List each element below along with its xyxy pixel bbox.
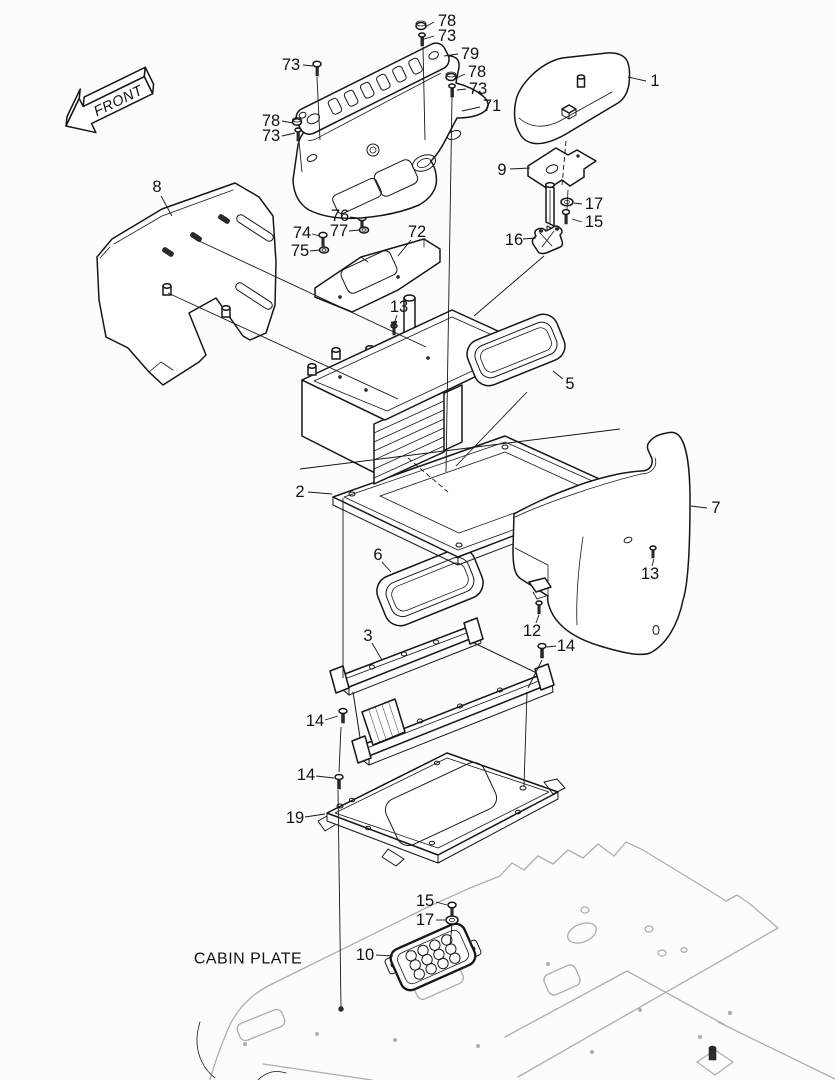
bolt-15-bottom [448,902,456,916]
part-label: 8 [152,178,161,196]
part-label: 74 [293,224,311,242]
part-6-pad-ring [372,543,488,630]
part-label: 15 [585,213,603,231]
label-leader-line [316,776,334,778]
part-label: 78 [468,63,486,81]
part-8-side-cover [97,183,276,385]
label-leader-line [628,77,646,81]
part-label: 12 [523,622,541,640]
part-label: 17 [416,911,434,929]
part-label: 13 [390,298,408,316]
part-label: 71 [483,97,501,115]
part-label: 1 [650,72,659,90]
bolt-14-bottom [335,775,343,790]
part-label: 16 [505,231,523,249]
cap-78-a [416,21,426,30]
label-leader-line [547,646,556,647]
part-label: 79 [461,45,479,63]
part-1-armrest [515,53,630,144]
label-leader-line [691,506,707,508]
nut-75 [320,247,329,253]
label-leader-line [308,492,332,494]
screw-73-a [419,33,425,46]
part-label: 5 [565,375,574,393]
part-label: 73 [262,127,280,145]
exploded-diagram: FRONT CABIN PLATE 7873797378737178731917… [0,0,835,1080]
label-leader-line [303,65,313,66]
part-label: 7 [711,499,720,517]
screw-74 [319,232,327,246]
label-leader-line [282,133,295,136]
bolt-15-top [563,210,570,224]
part-label: 73 [438,27,456,45]
part-label: 15 [416,892,434,910]
part-label: 19 [286,809,304,827]
part-19-base-plate [318,753,565,866]
label-leader-line [310,250,320,251]
bolt-14-left [339,709,347,724]
part-label: 73 [469,80,487,98]
part-label: 77 [330,222,348,240]
label-leader-line [572,219,582,222]
label-leader-line [325,716,338,720]
part-label: 14 [306,712,324,730]
screw-73-c [313,61,321,76]
label-leader-line [436,902,447,905]
part-label: 72 [408,223,426,241]
part-label: 3 [363,627,372,645]
label-leader-line [574,203,582,204]
cabin-plate-label: CABIN PLATE [194,951,302,968]
part-label: 6 [373,546,382,564]
bolt-14-right [538,644,546,659]
label-leader-line [372,643,382,660]
part-72-bracket [315,239,440,312]
label-leader-line [382,562,391,572]
label-leader-line [305,814,325,817]
part-label: 14 [297,766,315,784]
part-label: 9 [497,161,506,179]
nut-77 [360,227,369,233]
label-leader-line [553,371,563,379]
part-label: 10 [356,946,374,964]
part-label: 2 [295,483,304,501]
part-label: 75 [291,242,309,260]
label-leader-line [282,121,293,123]
diagram-page: FRONT CABIN PLATE 7873797378737178731917… [0,0,835,1080]
part-label: 13 [641,565,659,583]
washer-17-bottom [446,916,458,924]
label-leader-line [349,230,360,231]
label-leader-line [510,168,530,169]
part-16-clamp [532,226,562,254]
part-label: 73 [282,56,300,74]
part-label: 14 [557,637,575,655]
part-label: 17 [585,195,603,213]
front-arrow: FRONT [54,59,161,143]
